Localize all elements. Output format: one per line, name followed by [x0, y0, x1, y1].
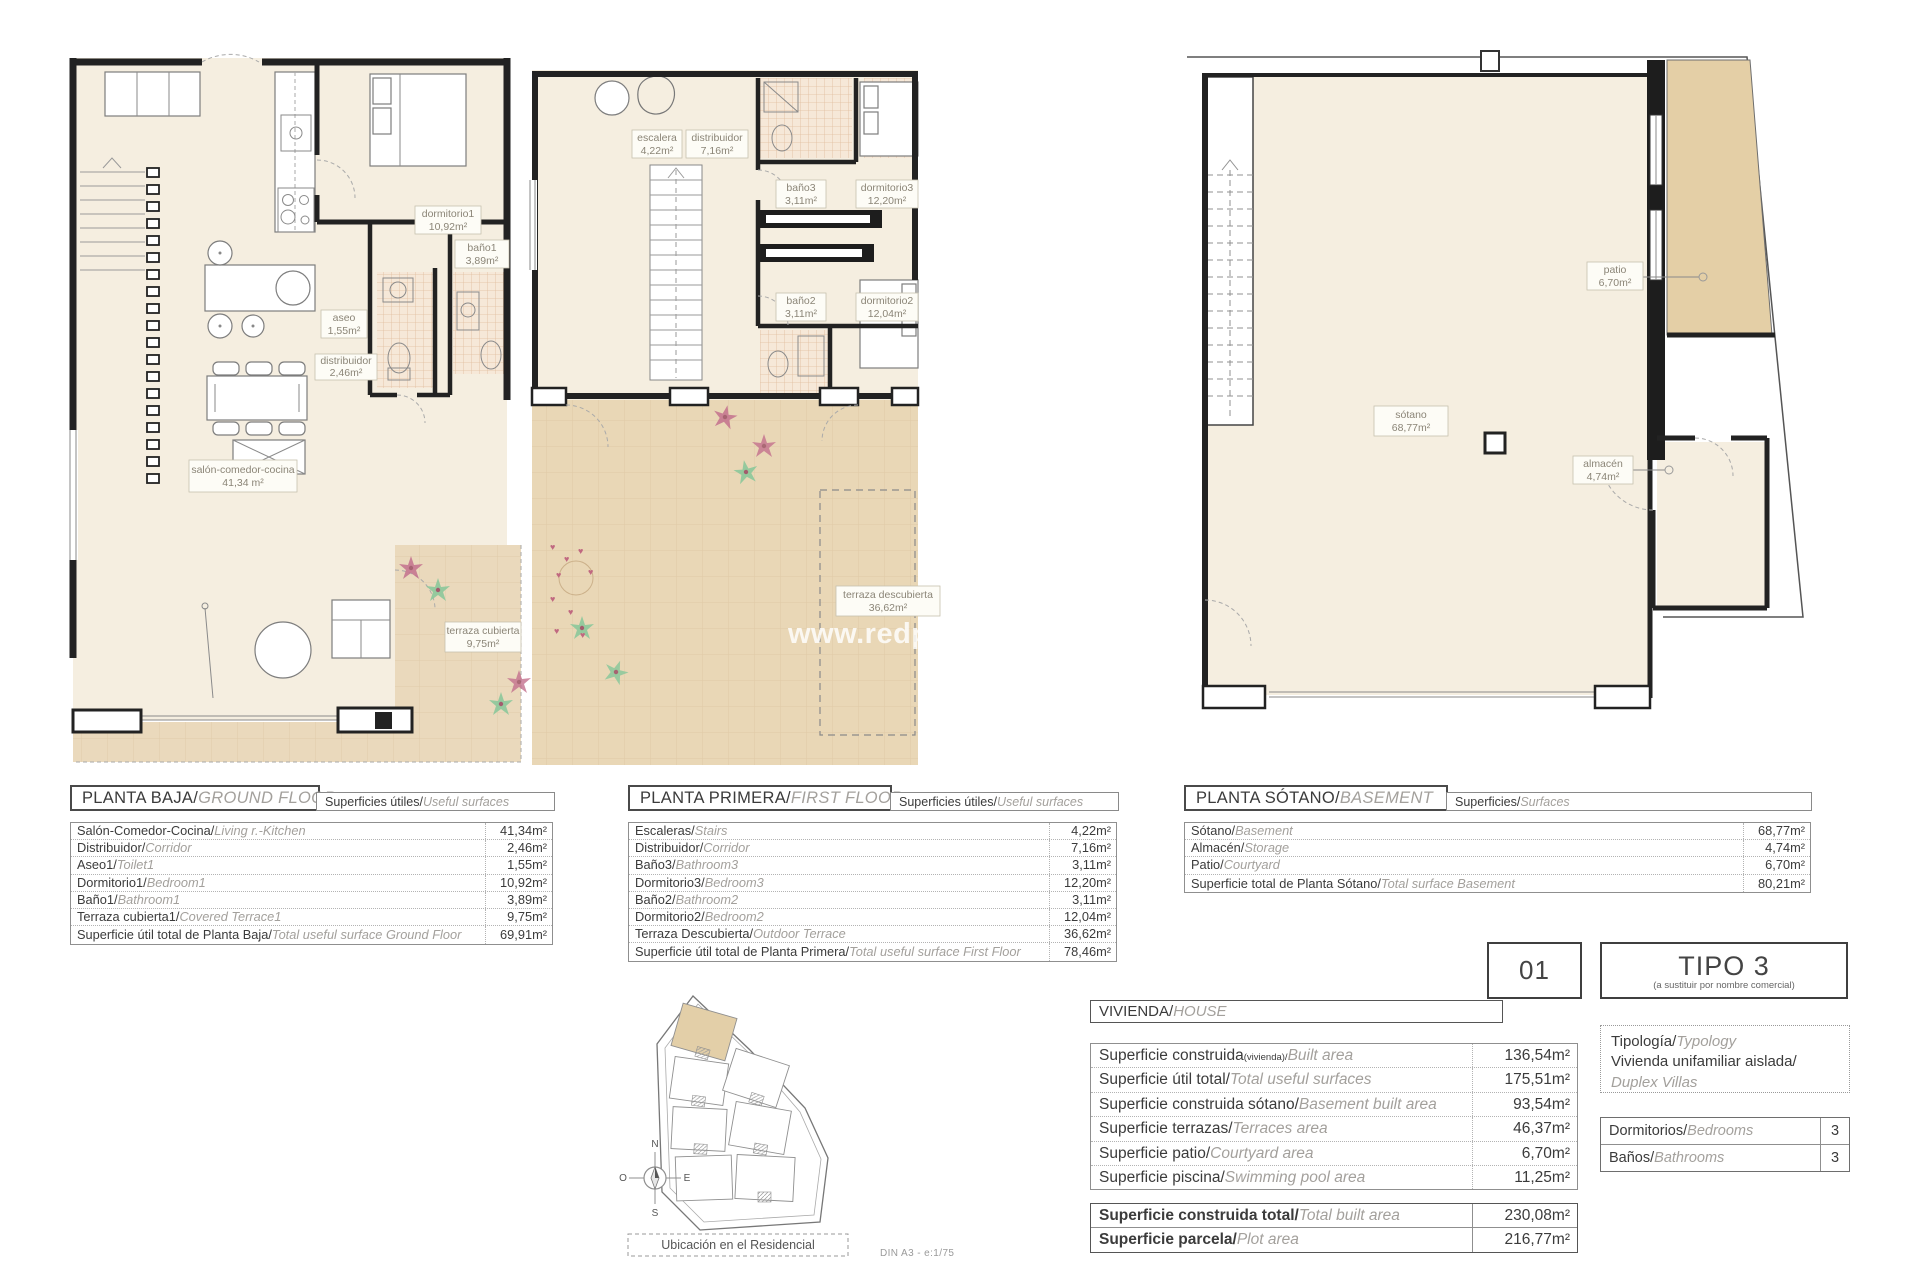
svg-text:dormitorio3: dormitorio3 — [861, 182, 914, 194]
plan-sheet: dormitorio1 10,92m² baño1 3,89m² aseo 1,… — [0, 0, 1920, 1280]
svg-text:12,04m²: 12,04m² — [868, 308, 907, 320]
room-label-dormitorio3: dormitorio3 12,20m² — [856, 180, 918, 208]
svg-text:aseo: aseo — [333, 312, 356, 324]
table-row: Superficie patio/Courtyard area6,70m² — [1091, 1141, 1577, 1165]
unit-number-box: 01 — [1487, 942, 1582, 999]
table-row: Baño3/Bathroom33,11m² — [629, 856, 1116, 873]
svg-text:♥: ♥ — [550, 594, 555, 604]
table-row: Superficie construida(vivienda)/Built ar… — [1091, 1044, 1577, 1067]
svg-text:escalera: escalera — [637, 132, 677, 144]
site-plan: N S E O Ubicación en el Residencial — [600, 960, 900, 1260]
table-row: Baño2/Bathroom23,11m² — [629, 891, 1116, 908]
sheet-scale-note: DIN A3 - e:1/75 — [880, 1248, 954, 1259]
room-label-dormitorio2: dormitorio2 12,04m² — [856, 293, 918, 321]
svg-text:distribuidor: distribuidor — [320, 355, 372, 367]
svg-text:baño3: baño3 — [786, 182, 815, 194]
svg-text:♥: ♥ — [588, 567, 593, 577]
svg-text:distribuidor: distribuidor — [691, 132, 743, 144]
first-floor-table-title: PLANTA PRIMERA/FIRST FLOOR — [628, 785, 892, 811]
ground-floor-table-subtitle: Superficies útiles/Useful surfaces — [316, 792, 555, 811]
table-row: Baño1/Bathroom13,89m² — [71, 891, 552, 908]
table-row: Terraza Descubierta/Outdoor Terrace36,62… — [629, 925, 1116, 942]
svg-text:3,11m²: 3,11m² — [785, 195, 817, 207]
svg-text:S: S — [652, 1208, 659, 1219]
svg-text:♥: ♥ — [578, 546, 583, 556]
svg-text:terraza descubierta: terraza descubierta — [843, 589, 933, 601]
room-label-terraza-descubierta: terraza descubierta 36,62m² — [836, 586, 940, 616]
room-label-salon: salón-comedor-cocina 41,34 m² — [189, 460, 297, 492]
table-row: Distribuidor/Corridor7,16m² — [629, 839, 1116, 856]
house-totals-table: Superficie construida total/Total built … — [1090, 1203, 1578, 1253]
ground-floor-table: Salón-Comedor-Cocina/Living r.-Kitchen41… — [70, 822, 553, 945]
svg-text:salón-comedor-cocina: salón-comedor-cocina — [191, 464, 294, 476]
svg-text:36,62m²: 36,62m² — [869, 602, 908, 614]
room-label-bano3: baño3 3,11m² — [776, 180, 826, 208]
svg-text:12,20m²: 12,20m² — [868, 195, 907, 207]
basement-table-title: PLANTA SÓTANO/BASEMENT — [1184, 785, 1448, 811]
room-label-distribuidor: distribuidor 2,46m² — [315, 354, 377, 380]
first-floor-geometry: ♥♥♥ ♥♥♥ ♥♥♥ — [528, 70, 918, 765]
ground-floor-plan: dormitorio1 10,92m² baño1 3,89m² aseo 1,… — [55, 10, 525, 772]
site-plan-caption: Ubicación en el Residencial — [628, 1234, 848, 1256]
room-label-dormitorio1: dormitorio1 10,92m² — [415, 206, 481, 234]
table-row: Sótano/Basement68,77m² — [1185, 823, 1810, 839]
table-row: Superficie terrazas/Terraces area46,37m² — [1091, 1116, 1577, 1140]
table-row: Dormitorio1/Bedroom110,92m² — [71, 874, 552, 891]
svg-text:1,55m²: 1,55m² — [328, 325, 361, 337]
basement-table: Sótano/Basement68,77m² Almacén/Storage4,… — [1184, 822, 1811, 893]
svg-text:N: N — [651, 1139, 658, 1150]
room-label-escalera: escalera 4,22m² — [632, 130, 682, 158]
table-row: Baños/Bathrooms3 — [1601, 1144, 1849, 1171]
ground-floor-table-title: PLANTA BAJA/GROUND FLOOR — [70, 785, 320, 811]
room-label-almacen: almacén 4,74m² — [1573, 456, 1633, 484]
svg-text:4,74m²: 4,74m² — [1587, 471, 1620, 483]
ground-floor-geometry — [68, 54, 531, 762]
basement-geometry — [1187, 51, 1803, 708]
table-row: Patio/Courtyard6,70m² — [1185, 856, 1810, 873]
table-row: Superficie piscina/Swimming pool area11,… — [1091, 1165, 1577, 1189]
table-total-row: Superficie útil total de Planta Primera/… — [629, 942, 1116, 961]
table-row: Dormitorio3/Bedroom312,20m² — [629, 874, 1116, 891]
watermark: www.redpalmestate.com — [788, 618, 1188, 651]
svg-text:7,16m²: 7,16m² — [701, 145, 734, 157]
first-floor-table: Escaleras/Stairs4,22m² Distribuidor/Corr… — [628, 822, 1117, 962]
svg-text:3,11m²: 3,11m² — [785, 308, 817, 320]
svg-text:♥: ♥ — [568, 607, 573, 617]
table-row: Almacén/Storage4,74m² — [1185, 839, 1810, 856]
type-note: (a sustituir por nombre comercial) — [1653, 980, 1795, 991]
room-label-patio: patio 6,70m² — [1587, 262, 1643, 290]
svg-text:O: O — [619, 1173, 627, 1184]
svg-text:10,92m²: 10,92m² — [429, 221, 468, 233]
first-floor-table-subtitle: Superficies útiles/Useful surfaces — [890, 792, 1119, 811]
svg-text:almacén: almacén — [1583, 458, 1623, 470]
svg-text:dormitorio2: dormitorio2 — [861, 295, 914, 307]
svg-text:dormitorio1: dormitorio1 — [422, 208, 475, 220]
basement-table-subtitle: Superficies/Surfaces — [1446, 792, 1812, 811]
svg-text:E: E — [684, 1173, 691, 1184]
room-label-bano2: baño2 3,11m² — [776, 293, 826, 321]
table-row: Superficie construida sótano/Basement bu… — [1091, 1092, 1577, 1116]
svg-text:6,70m²: 6,70m² — [1599, 277, 1632, 289]
typology-box: Tipología/Typology Vivienda unifamiliar … — [1600, 1025, 1850, 1093]
table-total-row: Superficie útil total de Planta Baja/Tot… — [71, 925, 552, 944]
unit-number: 01 — [1519, 955, 1550, 986]
svg-text:4,22m²: 4,22m² — [641, 145, 674, 157]
table-total-row: Superficie parcela/Plot area216,77m² — [1091, 1227, 1577, 1251]
house-areas-table: Superficie construida(vivienda)/Built ar… — [1090, 1043, 1578, 1190]
table-row: Terraza cubierta1/Covered Terrace19,75m² — [71, 908, 552, 925]
table-row: Aseo1/Toilet11,55m² — [71, 856, 552, 873]
rooms-count-table: Dormitorios/Bedrooms3 Baños/Bathrooms3 — [1600, 1117, 1850, 1172]
type-box: TIPO 3 (a sustituir por nombre comercial… — [1600, 942, 1848, 999]
svg-text:sótano: sótano — [1395, 409, 1427, 421]
svg-text:♥: ♥ — [550, 542, 555, 552]
svg-text:baño2: baño2 — [786, 295, 815, 307]
table-total-row: Superficie total de Planta Sótano/Total … — [1185, 874, 1810, 893]
svg-text:9,75m²: 9,75m² — [467, 638, 500, 650]
svg-text:patio: patio — [1604, 264, 1627, 276]
site-plan-geometry — [657, 996, 828, 1230]
svg-text:41,34 m²: 41,34 m² — [222, 477, 264, 489]
svg-text:Ubicación en el Residencial: Ubicación en el Residencial — [661, 1238, 815, 1252]
basement-plan: patio 6,70m² sótano 68,77m² almacén 4,74… — [1175, 40, 1825, 760]
table-row: Dormitorio2/Bedroom212,04m² — [629, 908, 1116, 925]
svg-text:♥: ♥ — [564, 554, 569, 564]
room-label-aseo: aseo 1,55m² — [321, 310, 367, 338]
table-row: Superficie útil total/Total useful surfa… — [1091, 1067, 1577, 1091]
house-table-title: VIVIENDA/HOUSE — [1090, 1000, 1503, 1023]
svg-text:baño1: baño1 — [467, 242, 496, 254]
type-title: TIPO 3 — [1678, 951, 1770, 982]
table-row: Distribuidor/Corridor2,46m² — [71, 839, 552, 856]
svg-text:68,77m²: 68,77m² — [1392, 422, 1431, 434]
room-label-sotano: sótano 68,77m² — [1374, 406, 1448, 436]
first-floor-plan: ♥♥♥ ♥♥♥ ♥♥♥ escalera 4,22m² distribuidor… — [520, 30, 920, 775]
table-row: Salón-Comedor-Cocina/Living r.-Kitchen41… — [71, 823, 552, 839]
room-label-terraza-cubierta: terraza cubierta 9,75m² — [445, 622, 521, 652]
table-row: Escaleras/Stairs4,22m² — [629, 823, 1116, 839]
table-row: Dormitorios/Bedrooms3 — [1601, 1118, 1849, 1144]
svg-text:3,89m²: 3,89m² — [466, 255, 499, 267]
svg-text:♥: ♥ — [554, 626, 559, 636]
svg-text:2,46m²: 2,46m² — [330, 367, 363, 379]
table-total-row: Superficie construida total/Total built … — [1091, 1204, 1577, 1227]
svg-text:♥: ♥ — [556, 570, 561, 580]
room-label-distribuidor-p1: distribuidor 7,16m² — [686, 130, 748, 158]
room-label-bano1: baño1 3,89m² — [455, 240, 509, 268]
svg-text:♥: ♥ — [580, 630, 585, 640]
svg-text:terraza cubierta: terraza cubierta — [447, 625, 520, 637]
